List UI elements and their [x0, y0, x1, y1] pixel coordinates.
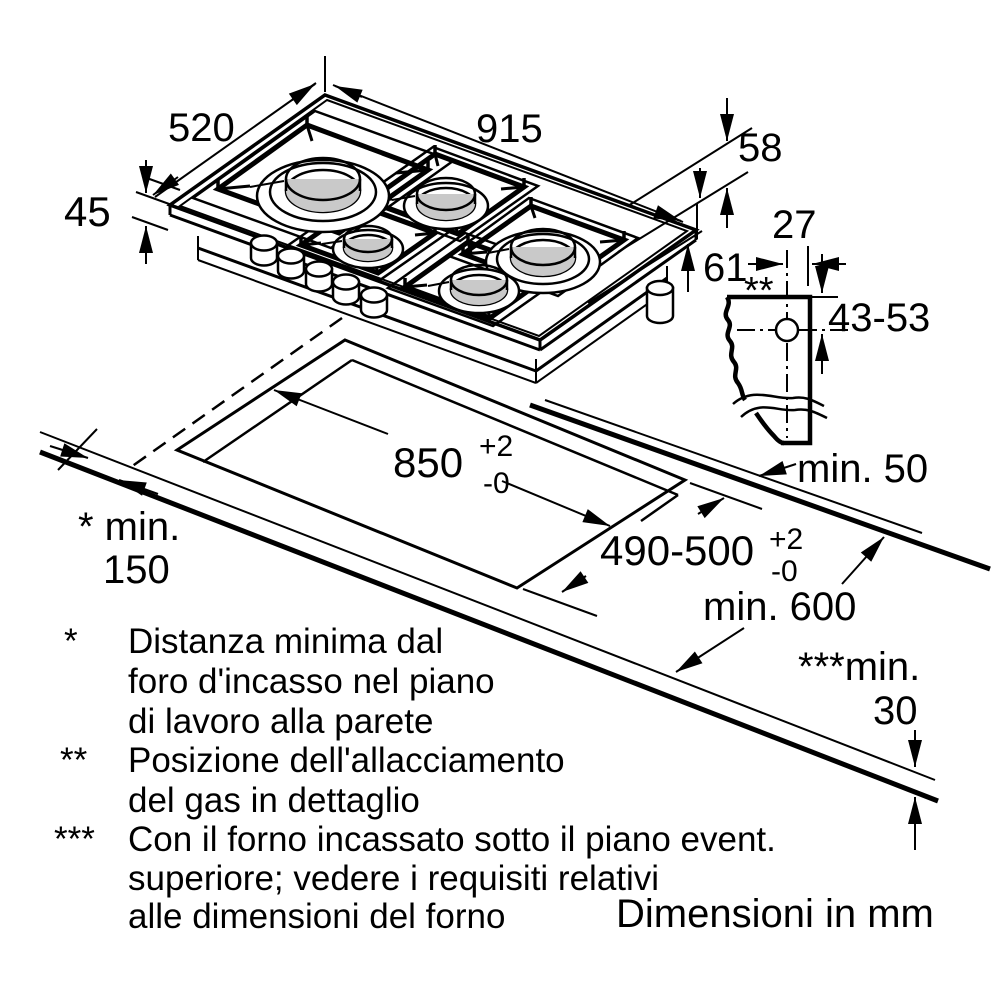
- control-knob: [306, 262, 332, 292]
- detail-profile-left-lower: [756, 413, 784, 443]
- dim-min600-arrow-a: [842, 537, 884, 584]
- gas-detail-marker: **: [744, 270, 774, 312]
- gas-stub: [647, 281, 673, 323]
- dim-490-line-b: [562, 576, 586, 592]
- footnote-marker-3: ***: [54, 820, 95, 859]
- footnote-line: di lavoro alla parete: [128, 702, 433, 741]
- footnote-marker-1: *: [64, 622, 78, 661]
- footnote-line: superiore; vedere i requisiti relativi: [128, 859, 659, 898]
- dim-45-tick-bottom: [132, 217, 168, 230]
- detail-break-arc-b: [741, 407, 827, 418]
- dim-490-label: 490-500: [600, 527, 754, 574]
- dim-850-tol-plus: +2: [479, 430, 513, 463]
- dim-min150-label: * min.: [78, 505, 180, 549]
- dim-min30-label: ***min.: [798, 645, 920, 689]
- cutout-inner-right: [641, 495, 678, 521]
- dim-490-line-a: [698, 498, 724, 514]
- dim-61-label: 61: [703, 246, 748, 290]
- footnote-line: Distanza minima dal: [128, 622, 443, 661]
- dim-915-arrow-a: [335, 86, 362, 97]
- detail-profile-outline: [727, 297, 810, 443]
- dim-4353-label: 43-53: [828, 296, 930, 340]
- dim-min600-label: min. 600: [703, 585, 856, 629]
- footnote-line: Posizione dell'allacciamento: [128, 741, 565, 780]
- footnote-line: foro d'incasso nel piano: [128, 662, 495, 701]
- gas-connection-point: [776, 319, 798, 341]
- dim-45-label: 45: [64, 188, 111, 235]
- dim-min50-arrow: [759, 464, 796, 476]
- footnote-line: Con il forno incassato sotto il piano ev…: [128, 820, 776, 859]
- dim-min150-value: 150: [103, 548, 170, 592]
- control-knob: [361, 288, 387, 318]
- dim-850-line-b: [502, 481, 610, 526]
- hob-isometric-view: [170, 95, 696, 383]
- control-knob: [251, 236, 277, 266]
- dim-490-tol-plus: +2: [769, 523, 803, 556]
- dim-27-label: 27: [772, 203, 817, 247]
- dim-490-ext-back: [690, 483, 762, 509]
- control-knob: [278, 249, 304, 279]
- alignment-dashed-line: [131, 318, 342, 467]
- ext-line-1: [628, 128, 752, 206]
- dim-58-label: 58: [738, 126, 783, 170]
- units-caption: Dimensioni in mm: [616, 892, 934, 936]
- footnote-marker-2: **: [60, 741, 88, 780]
- control-knob: [333, 275, 359, 305]
- dim-850-tol-minus: -0: [483, 467, 510, 500]
- dim-490-ext-front: [523, 589, 597, 616]
- dim-490-tol-minus: -0: [771, 555, 798, 588]
- dim-min50-label: min. 50: [797, 447, 928, 491]
- dim-min600-arrow-b: [676, 628, 744, 672]
- installation-diagram: 850 +2 -0 490-500 +2 -0 min. 50 * min. 1…: [0, 0, 1000, 1000]
- dim-915-label: 915: [476, 107, 543, 151]
- footnote-line: alle dimensioni del forno: [128, 897, 505, 936]
- dim-850-label: 850: [393, 439, 463, 486]
- dim-520-label: 520: [168, 106, 235, 150]
- dim-850-line-a: [274, 390, 388, 434]
- dim-520-arrow-a: [292, 84, 315, 100]
- dim-min30-value: 30: [873, 689, 918, 733]
- gas-connection-detail: 27 ** 43-53: [726, 203, 931, 443]
- diagram-canvas: 850 +2 -0 490-500 +2 -0 min. 50 * min. 1…: [0, 0, 1000, 1000]
- footnote-line: del gas in dettaglio: [128, 781, 420, 820]
- detail-profile-left-contour: [726, 297, 745, 400]
- dim-520-arrow-b: [153, 177, 178, 195]
